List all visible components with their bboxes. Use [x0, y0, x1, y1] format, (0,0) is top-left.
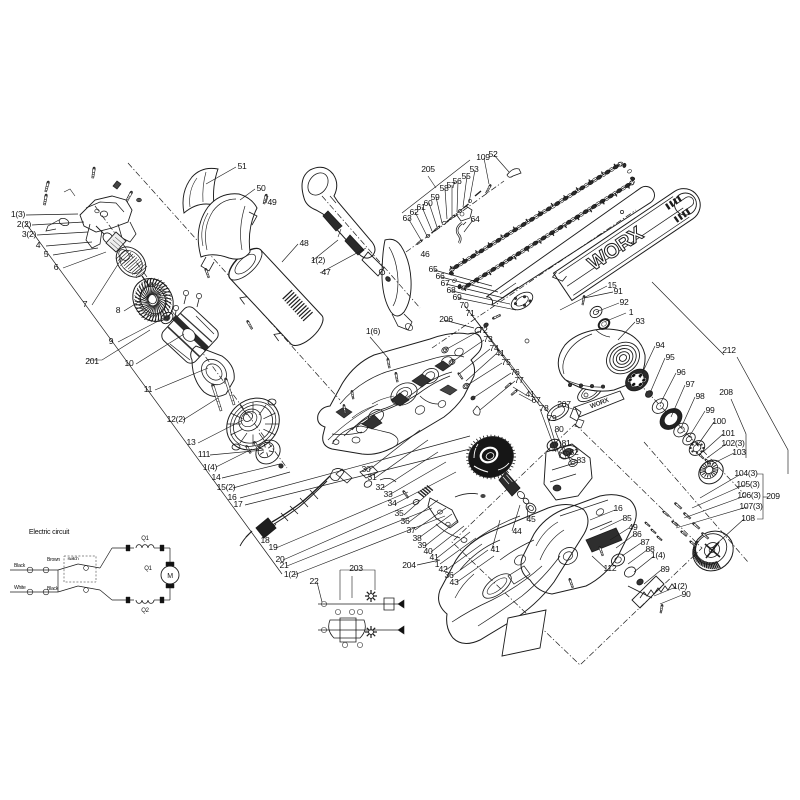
- svg-text:103: 103: [732, 447, 746, 457]
- svg-text:95: 95: [665, 352, 675, 362]
- svg-text:41: 41: [490, 544, 500, 554]
- svg-text:78: 78: [539, 403, 549, 413]
- svg-text:64: 64: [470, 214, 480, 224]
- svg-text:5: 5: [44, 249, 49, 259]
- svg-text:89: 89: [660, 564, 670, 574]
- svg-text:50: 50: [256, 183, 266, 193]
- svg-text:Brown: Brown: [47, 557, 60, 563]
- svg-text:209: 209: [766, 491, 780, 501]
- svg-text:22: 22: [309, 576, 319, 586]
- svg-text:107(3): 107(3): [739, 501, 763, 511]
- svg-text:77: 77: [514, 375, 524, 385]
- svg-text:31: 31: [367, 472, 377, 482]
- svg-text:49: 49: [267, 197, 277, 207]
- svg-text:1(2): 1(2): [311, 255, 326, 265]
- svg-text:205: 205: [421, 164, 435, 174]
- svg-text:108: 108: [741, 513, 755, 523]
- svg-text:1(3): 1(3): [11, 209, 26, 219]
- svg-text:111: 111: [198, 449, 211, 459]
- svg-text:11: 11: [144, 384, 153, 394]
- svg-text:80: 80: [554, 424, 564, 434]
- svg-text:3(2): 3(2): [22, 229, 37, 239]
- svg-text:91: 91: [613, 286, 623, 296]
- svg-text:104(3): 104(3): [734, 468, 758, 478]
- svg-text:switch: switch: [67, 556, 79, 561]
- svg-text:52: 52: [488, 149, 498, 159]
- svg-text:71: 71: [465, 308, 475, 318]
- svg-text:101: 101: [721, 428, 735, 438]
- svg-text:9: 9: [109, 336, 114, 346]
- svg-text:Q2: Q2: [141, 608, 149, 614]
- svg-text:1(4): 1(4): [651, 550, 666, 560]
- svg-text:208: 208: [719, 387, 733, 397]
- svg-text:94: 94: [655, 340, 665, 350]
- svg-text:8: 8: [116, 305, 121, 315]
- svg-text:16: 16: [613, 503, 623, 513]
- svg-text:2(2): 2(2): [17, 219, 32, 229]
- svg-text:207: 207: [557, 399, 571, 409]
- svg-text:51: 51: [237, 161, 247, 171]
- svg-text:203: 203: [349, 563, 363, 573]
- svg-text:90: 90: [681, 589, 691, 599]
- svg-text:112: 112: [604, 563, 617, 573]
- svg-text:47: 47: [321, 267, 331, 277]
- svg-text:79: 79: [547, 413, 557, 423]
- svg-text:1: 1: [629, 307, 634, 317]
- svg-text:204: 204: [402, 560, 416, 570]
- svg-text:1(4): 1(4): [203, 462, 218, 472]
- svg-text:83: 83: [576, 455, 586, 465]
- svg-text:96: 96: [676, 367, 686, 377]
- svg-text:15(2): 15(2): [217, 482, 236, 492]
- svg-text:Electric circuit: Electric circuit: [29, 527, 70, 536]
- svg-text:4: 4: [36, 240, 41, 250]
- svg-text:46: 46: [420, 249, 430, 259]
- svg-text:1(6): 1(6): [366, 326, 381, 336]
- svg-text:75: 75: [501, 357, 511, 367]
- svg-text:97: 97: [685, 379, 695, 389]
- svg-text:43: 43: [449, 577, 459, 587]
- svg-text:105(3): 105(3): [736, 479, 760, 489]
- svg-text:106(3): 106(3): [737, 490, 761, 500]
- svg-text:53: 53: [469, 164, 479, 174]
- svg-text:White: White: [14, 585, 26, 591]
- svg-text:19: 19: [268, 542, 278, 552]
- svg-text:206: 206: [439, 314, 453, 324]
- svg-text:34: 34: [387, 498, 397, 508]
- svg-text:201: 201: [85, 356, 99, 366]
- svg-text:17: 17: [233, 499, 243, 509]
- svg-text:98: 98: [695, 391, 705, 401]
- svg-text:48: 48: [299, 238, 309, 248]
- svg-text:93: 93: [635, 316, 645, 326]
- svg-text:12(2): 12(2): [167, 414, 186, 424]
- svg-text:59: 59: [430, 192, 440, 202]
- svg-text:Black: Black: [14, 563, 26, 569]
- svg-text:100: 100: [712, 416, 726, 426]
- svg-text:44: 44: [512, 526, 522, 536]
- svg-text:99: 99: [705, 405, 715, 415]
- svg-text:6: 6: [54, 262, 59, 272]
- svg-text:1(2): 1(2): [284, 569, 299, 579]
- svg-text:13: 13: [186, 437, 196, 447]
- svg-text:M: M: [167, 573, 173, 580]
- svg-text:92: 92: [619, 297, 629, 307]
- svg-text:10: 10: [124, 358, 134, 368]
- svg-text:14: 14: [211, 472, 221, 482]
- svg-text:45: 45: [526, 514, 536, 524]
- svg-text:7: 7: [83, 299, 88, 309]
- svg-text:212: 212: [722, 345, 736, 355]
- svg-text:Q1: Q1: [144, 566, 152, 572]
- svg-text:Q1: Q1: [141, 536, 149, 542]
